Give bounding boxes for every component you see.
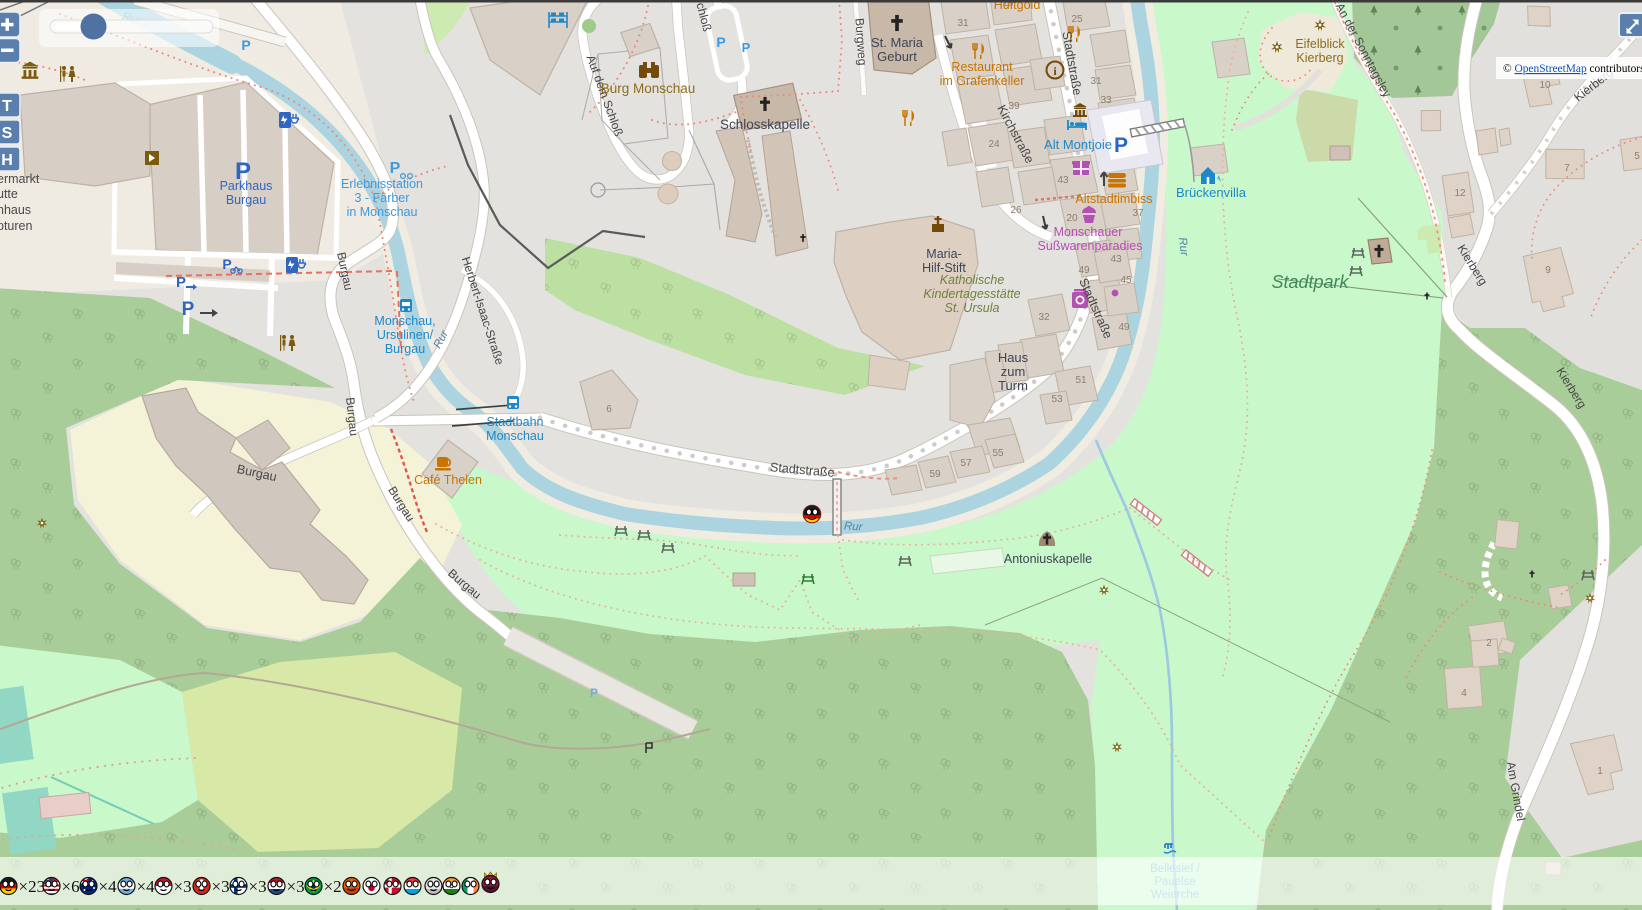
svg-text:P: P — [1114, 134, 1128, 157]
svg-text:45: 45 — [1120, 275, 1132, 286]
svg-text:43: 43 — [1057, 175, 1069, 186]
svg-text:Burgau: Burgau — [385, 342, 425, 356]
svg-text:Restaurant: Restaurant — [951, 60, 1013, 74]
svg-text:33: 33 — [1100, 95, 1112, 106]
svg-text:53: 53 — [1051, 394, 1063, 405]
svg-text:×2: ×2 — [324, 877, 342, 896]
svg-text:Kindertagesstätte: Kindertagesstätte — [923, 287, 1020, 301]
svg-text:Erlebnisstation: Erlebnisstation — [341, 177, 423, 191]
svg-text:×3: ×3 — [174, 877, 192, 896]
svg-text:utte: utte — [0, 187, 18, 201]
svg-text:Antoniuskapelle: Antoniuskapelle — [1004, 552, 1092, 566]
svg-text:im Grafenkeller: im Grafenkeller — [940, 74, 1025, 88]
svg-text:43: 43 — [1110, 254, 1122, 265]
svg-text:9: 9 — [1545, 265, 1551, 276]
svg-text:×3: ×3 — [287, 877, 305, 896]
svg-text:51: 51 — [1075, 375, 1087, 386]
svg-text:P: P — [222, 256, 231, 272]
svg-text:2: 2 — [1486, 638, 1492, 649]
svg-text:Monschau,: Monschau, — [374, 314, 435, 328]
svg-text:Schlosskapelle: Schlosskapelle — [720, 117, 810, 132]
svg-text:Ursulinen/: Ursulinen/ — [377, 328, 434, 342]
svg-text:Rur: Rur — [844, 520, 864, 533]
svg-text:1: 1 — [1597, 766, 1603, 777]
svg-text:ermarkt: ermarkt — [0, 172, 40, 186]
svg-text:St. Ursula: St. Ursula — [945, 301, 1000, 315]
svg-text:10: 10 — [1539, 80, 1551, 91]
svg-text:×6: ×6 — [62, 877, 80, 896]
svg-text:P: P — [241, 37, 250, 53]
svg-text:Katholische: Katholische — [940, 273, 1005, 287]
svg-text:Maria-: Maria- — [926, 247, 961, 261]
svg-text:×4: ×4 — [137, 877, 156, 896]
svg-text:26: 26 — [1010, 205, 1022, 216]
svg-text:Altstadtimbiss: Altstadtimbiss — [1075, 192, 1152, 206]
svg-text:57: 57 — [960, 458, 972, 469]
svg-text:Burg Monschau: Burg Monschau — [601, 81, 696, 96]
svg-text:© OpenStreetMap contributors: © OpenStreetMap contributors — [1503, 63, 1642, 75]
svg-text:Stadtpark: Stadtpark — [1271, 272, 1349, 292]
svg-text:St. Maria: St. Maria — [871, 35, 924, 50]
svg-text:3 - Färber: 3 - Färber — [355, 191, 410, 205]
svg-text:49: 49 — [1078, 265, 1090, 276]
svg-text:Café Thelen: Café Thelen — [414, 473, 482, 487]
svg-text:zum: zum — [1001, 364, 1026, 379]
svg-text:Geburt: Geburt — [877, 49, 917, 64]
svg-text:Monschau: Monschau — [486, 429, 544, 443]
svg-text:55: 55 — [992, 448, 1004, 459]
svg-text:7: 7 — [1564, 163, 1570, 174]
svg-text:32: 32 — [1038, 312, 1050, 323]
svg-text:4: 4 — [1461, 688, 1467, 699]
svg-text:P: P — [390, 160, 401, 177]
svg-text:Stadtbahn: Stadtbahn — [487, 415, 544, 429]
svg-text:24: 24 — [988, 139, 1000, 150]
svg-text:P: P — [590, 686, 598, 700]
svg-text:P: P — [716, 34, 725, 50]
svg-text:P: P — [176, 274, 186, 291]
svg-text:12: 12 — [1454, 188, 1466, 199]
svg-text:P: P — [182, 299, 195, 320]
svg-text:×23: ×23 — [19, 877, 46, 896]
svg-text:Monschauer: Monschauer — [1054, 225, 1123, 239]
svg-text:Haus: Haus — [998, 350, 1029, 365]
svg-text:Rur: Rur — [1176, 237, 1190, 258]
svg-text:49: 49 — [1118, 322, 1130, 333]
svg-text:5: 5 — [1634, 151, 1640, 162]
svg-text:39: 39 — [1008, 101, 1020, 112]
svg-text:6: 6 — [606, 404, 612, 415]
svg-text:Parkhaus: Parkhaus — [220, 179, 273, 193]
svg-text:Sußwarenparadies: Sußwarenparadies — [1038, 239, 1143, 253]
svg-text:Turm: Turm — [998, 378, 1028, 393]
svg-text:T: T — [2, 98, 12, 115]
svg-text:×3: ×3 — [249, 877, 267, 896]
svg-text:31: 31 — [957, 18, 969, 29]
svg-text:Alt Montjoie: Alt Montjoie — [1044, 137, 1112, 152]
svg-text:59: 59 — [929, 469, 941, 480]
svg-text:pturen: pturen — [0, 219, 32, 233]
svg-text:Eifelblick: Eifelblick — [1295, 37, 1345, 51]
svg-text:25: 25 — [1071, 14, 1083, 25]
svg-text:Kierberg: Kierberg — [1296, 51, 1343, 65]
svg-text:Brückenvilla: Brückenvilla — [1176, 185, 1247, 200]
svg-text:nhaus: nhaus — [0, 203, 31, 217]
svg-text:P: P — [742, 40, 751, 55]
svg-text:31: 31 — [1090, 76, 1102, 87]
svg-text:S: S — [2, 125, 13, 142]
svg-text:Burgau: Burgau — [226, 193, 266, 207]
svg-text:×3: ×3 — [212, 877, 230, 896]
svg-text:37: 37 — [1132, 208, 1144, 219]
svg-text:H: H — [1, 152, 13, 169]
svg-text:in Monschau: in Monschau — [347, 205, 418, 219]
svg-text:20: 20 — [1066, 213, 1078, 224]
svg-text:×4: ×4 — [99, 877, 118, 896]
